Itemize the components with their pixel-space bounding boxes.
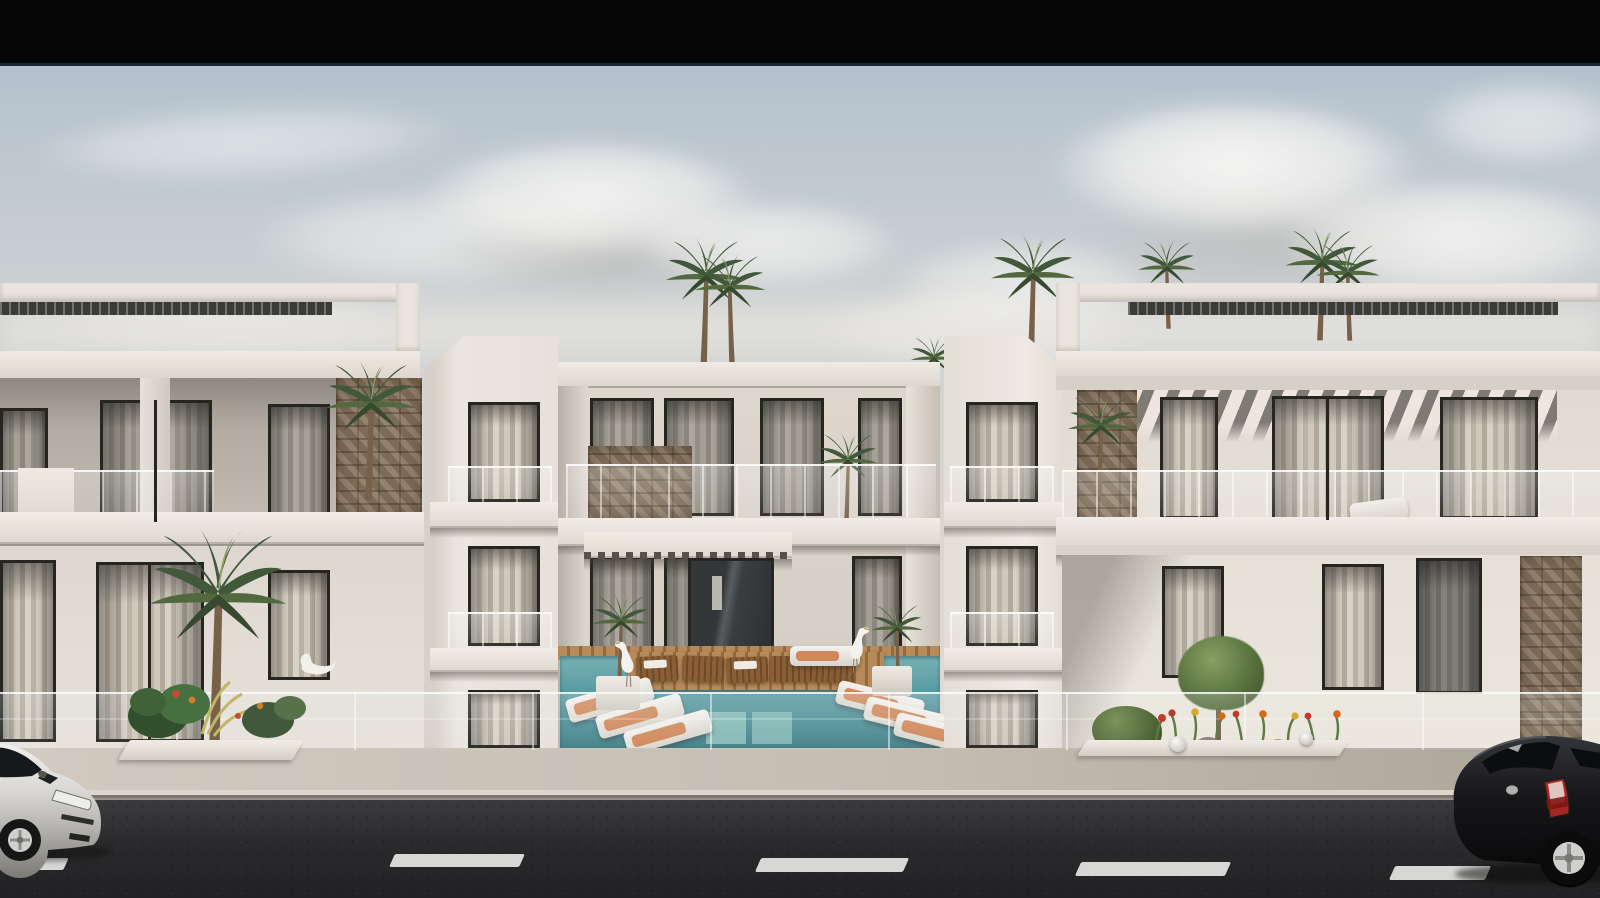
front-planters bbox=[0, 0, 1600, 898]
sphere-lamp bbox=[1170, 736, 1186, 752]
letterbox-bar bbox=[0, 0, 1600, 66]
architectural-render bbox=[0, 0, 1600, 898]
black-car bbox=[1448, 726, 1600, 891]
planter-rim bbox=[118, 740, 304, 760]
white-car bbox=[0, 738, 122, 863]
planter-plants-icon bbox=[118, 664, 314, 752]
sphere-lamp bbox=[1300, 732, 1313, 745]
